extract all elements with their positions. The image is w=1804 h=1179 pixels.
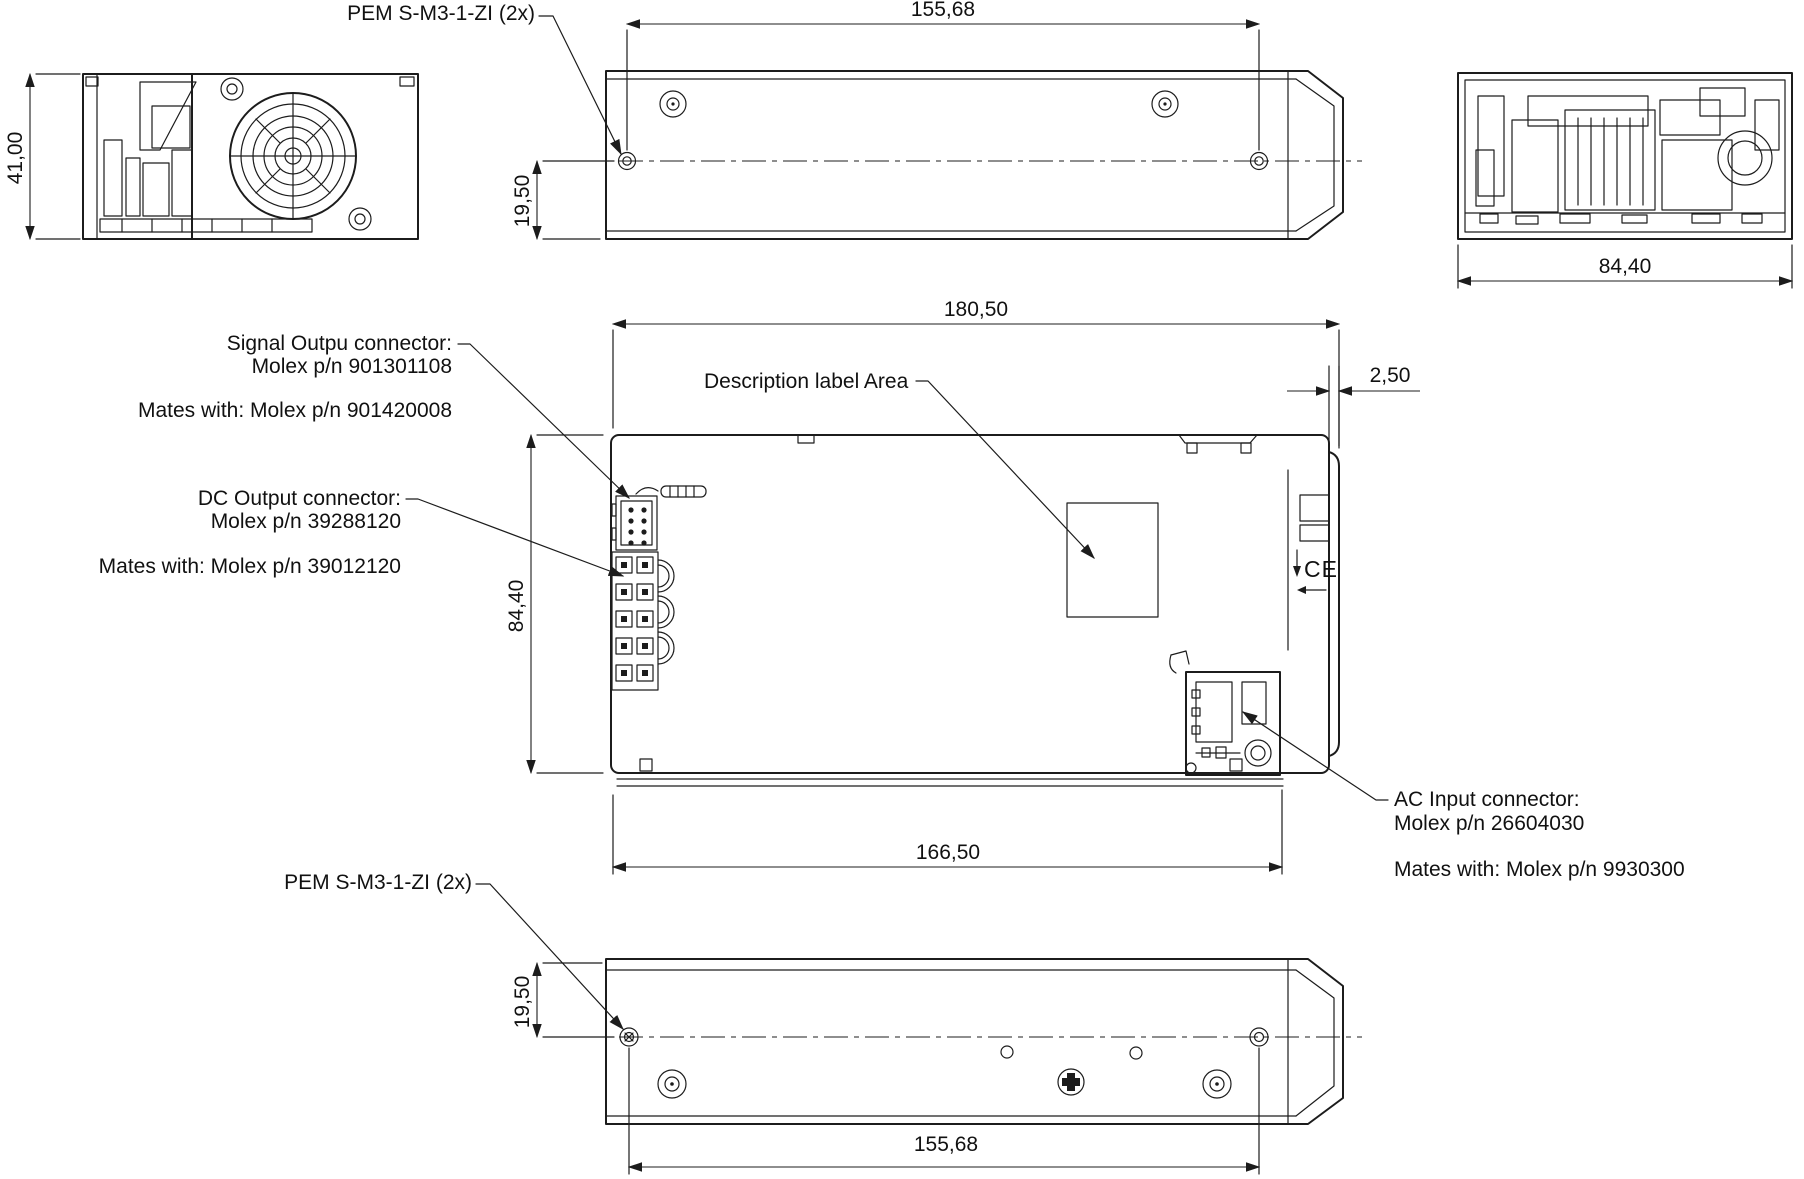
screw-head bbox=[660, 91, 686, 117]
dim-body-depth: 84,40 bbox=[505, 580, 528, 633]
signal-output-connector bbox=[612, 496, 657, 550]
label-pem-bottom: PEM S-M3-1-ZI (2x) bbox=[284, 871, 472, 894]
label-ac-connector-2: Molex p/n 26604030 bbox=[1394, 812, 1584, 835]
screw-head bbox=[1203, 1070, 1231, 1098]
ac-input-connector bbox=[1170, 651, 1280, 775]
top-side-view bbox=[578, 71, 1362, 239]
leader-pem-top bbox=[539, 16, 621, 154]
label-ac-mates: Mates with: Molex p/n 9930300 bbox=[1394, 858, 1685, 881]
label-dc-connector-1: DC Output connector: bbox=[198, 487, 401, 510]
back-view bbox=[1458, 73, 1792, 239]
leader-pem-bottom bbox=[476, 884, 623, 1029]
label-dc-mates: Mates with: Molex p/n 39012120 bbox=[99, 555, 401, 578]
screw-head bbox=[221, 78, 243, 100]
top-plan-view: CE bbox=[611, 435, 1339, 786]
arrow-down-icon bbox=[1293, 566, 1301, 577]
label-description-area: Description label Area bbox=[704, 370, 909, 393]
label-dc-connector-2: Molex p/n 39288120 bbox=[211, 510, 401, 533]
leader-dc-connector bbox=[406, 499, 623, 576]
corner-tab bbox=[400, 77, 414, 86]
dim-bottom-width: 155,68 bbox=[914, 1133, 978, 1156]
leader-lines bbox=[406, 16, 1388, 1029]
corner-tab bbox=[86, 77, 98, 86]
capacitor bbox=[1718, 131, 1772, 185]
screw-head bbox=[1152, 91, 1178, 117]
phillips-screw bbox=[1058, 1069, 1084, 1095]
dim-front-height: 41,00 bbox=[4, 132, 27, 185]
label-signal-connector-2: Molex p/n 901301108 bbox=[252, 355, 452, 378]
dim-edge-offset: 2,50 bbox=[1370, 364, 1411, 387]
description-label-area bbox=[1067, 503, 1158, 617]
front-view bbox=[83, 74, 418, 239]
dim-top-width: 155,68 bbox=[911, 0, 975, 21]
rear-lip bbox=[1329, 452, 1339, 756]
label-signal-connector-1: Signal Outpu connector: bbox=[227, 332, 452, 355]
vent-hole bbox=[1001, 1046, 1013, 1058]
dim-bottom-length: 166,50 bbox=[916, 841, 980, 864]
screw-head bbox=[1245, 740, 1271, 766]
vent-slot bbox=[636, 486, 706, 497]
label-signal-mates: Mates with: Molex p/n 901420008 bbox=[138, 399, 452, 422]
text-labels: PEM S-M3-1-ZI (2x) Signal Outpu connecto… bbox=[99, 2, 1685, 894]
dim-top-offset: 19,50 bbox=[511, 175, 534, 228]
vent-hole bbox=[1130, 1047, 1142, 1059]
arrow-left-icon bbox=[1297, 586, 1306, 594]
screw-head bbox=[349, 208, 371, 230]
dim-bottom-offset: 19,50 bbox=[511, 976, 534, 1029]
label-pem-top: PEM S-M3-1-ZI (2x) bbox=[347, 2, 535, 25]
technical-drawing-psu: CE bbox=[0, 0, 1804, 1179]
screw-head bbox=[658, 1070, 686, 1098]
dc-output-connector bbox=[612, 552, 674, 690]
dim-back-width: 84,40 bbox=[1599, 255, 1652, 278]
leader-signal-connector bbox=[458, 344, 629, 498]
fan-grille bbox=[230, 93, 356, 219]
bottom-side-view bbox=[578, 959, 1362, 1124]
dim-overall-length: 180,50 bbox=[944, 298, 1008, 321]
ce-panel: CE bbox=[1288, 470, 1338, 650]
label-ac-connector-1: AC Input connector: bbox=[1394, 788, 1580, 811]
ce-mark: CE bbox=[1304, 556, 1338, 582]
